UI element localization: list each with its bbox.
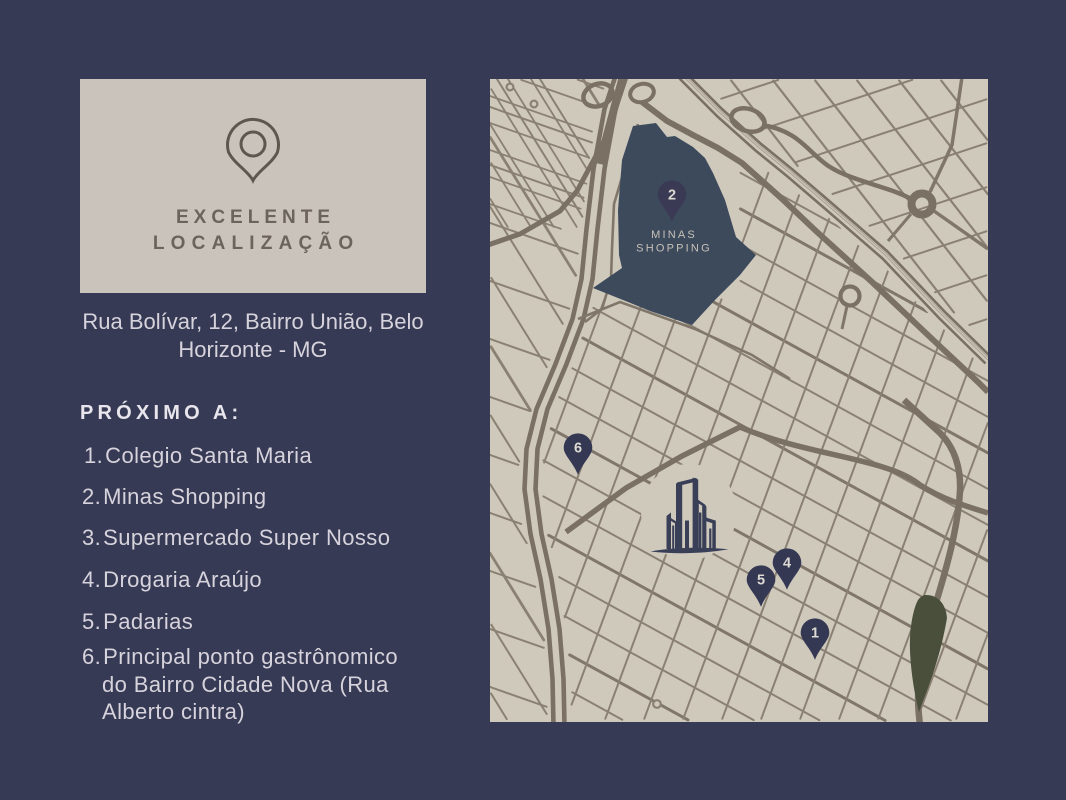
- svg-text:SHOPPING: SHOPPING: [636, 243, 712, 255]
- svg-text:6: 6: [574, 441, 582, 457]
- svg-text:4: 4: [783, 556, 791, 572]
- svg-text:2: 2: [668, 188, 676, 204]
- svg-text:5: 5: [757, 573, 765, 589]
- svg-text:MINAS: MINAS: [651, 229, 697, 241]
- svg-text:1: 1: [811, 626, 819, 642]
